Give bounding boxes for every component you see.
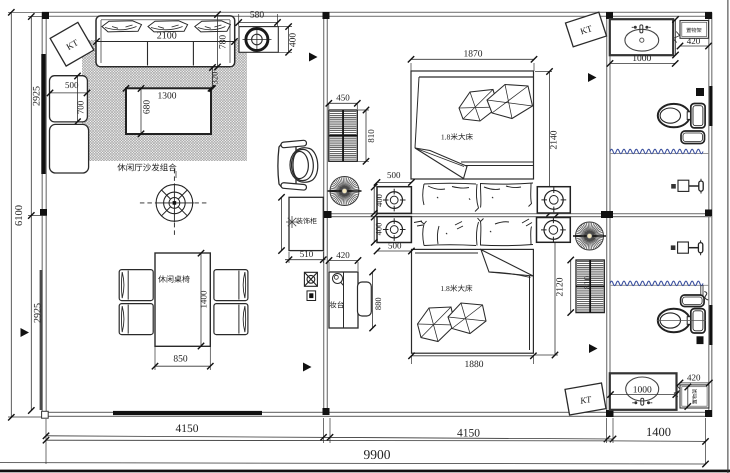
svg-text:810: 810 xyxy=(366,129,376,143)
svg-text:510: 510 xyxy=(300,249,314,259)
svg-text:400: 400 xyxy=(374,194,384,207)
svg-text:2120: 2120 xyxy=(556,277,566,296)
svg-text:400: 400 xyxy=(374,223,384,236)
svg-text:500: 500 xyxy=(65,80,79,90)
svg-text:680: 680 xyxy=(143,100,153,115)
svg-text:1400: 1400 xyxy=(646,425,671,439)
svg-text:450: 450 xyxy=(336,93,350,103)
svg-text:400: 400 xyxy=(288,33,298,48)
svg-text:2925: 2925 xyxy=(32,86,43,106)
svg-text:1.8米大床: 1.8米大床 xyxy=(441,133,474,142)
svg-text:500: 500 xyxy=(388,241,402,251)
svg-text:810: 810 xyxy=(582,275,592,289)
svg-text:妆台: 妆台 xyxy=(329,301,344,310)
svg-text:4150: 4150 xyxy=(176,423,199,435)
svg-text:320: 320 xyxy=(210,72,220,85)
svg-text:420: 420 xyxy=(687,372,701,382)
svg-text:780: 780 xyxy=(219,35,229,50)
svg-text:500: 500 xyxy=(387,170,401,180)
svg-text:850: 850 xyxy=(173,355,188,365)
svg-text:1300: 1300 xyxy=(158,91,177,101)
svg-text:880: 880 xyxy=(373,297,383,310)
svg-text:1000: 1000 xyxy=(632,54,651,64)
svg-text:休闲厅沙发组合: 休闲厅沙发组合 xyxy=(117,163,177,173)
svg-text:1400: 1400 xyxy=(199,290,209,309)
svg-text:1000: 1000 xyxy=(633,385,652,395)
svg-text:2140: 2140 xyxy=(550,130,560,149)
svg-text:置物架: 置物架 xyxy=(692,389,699,405)
svg-text:420: 420 xyxy=(336,250,350,260)
svg-text:1870: 1870 xyxy=(464,50,483,60)
svg-text:6100: 6100 xyxy=(14,205,25,226)
svg-text:置物架: 置物架 xyxy=(686,27,702,34)
svg-text:1880: 1880 xyxy=(465,360,484,370)
svg-text:700: 700 xyxy=(76,100,86,114)
svg-text:4150: 4150 xyxy=(457,427,480,439)
svg-text:2100: 2100 xyxy=(157,31,177,42)
svg-text:9900: 9900 xyxy=(364,447,391,462)
svg-text:420: 420 xyxy=(687,36,701,46)
svg-text:2925: 2925 xyxy=(33,303,44,323)
svg-text:休闲桌椅: 休闲桌椅 xyxy=(158,275,190,284)
svg-text:580: 580 xyxy=(250,11,265,21)
svg-text:装饰柜: 装饰柜 xyxy=(296,218,317,226)
svg-text:1.8米大床: 1.8米大床 xyxy=(440,284,473,293)
